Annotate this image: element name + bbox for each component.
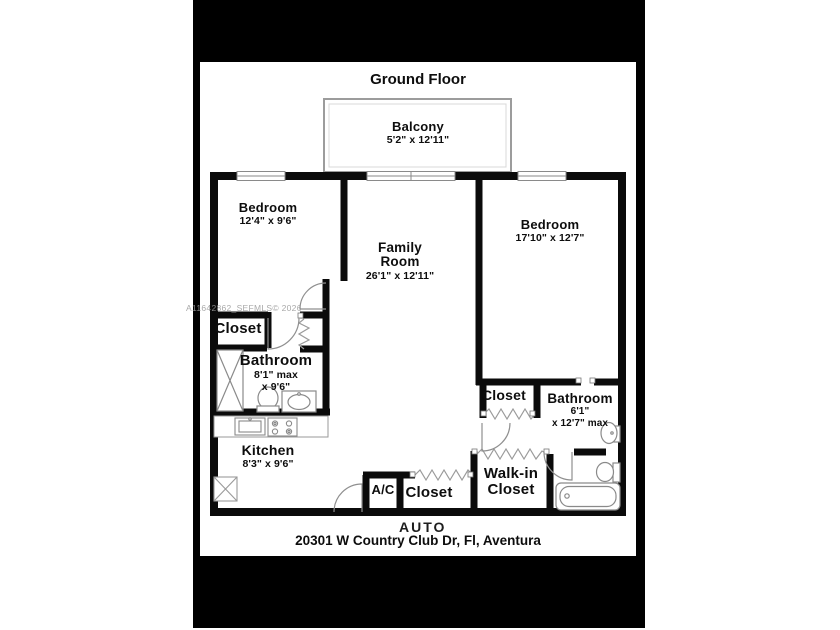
- room-label-ac: A/C: [372, 483, 395, 497]
- floor-title: Ground Floor: [370, 71, 466, 88]
- listing-photo: Ground Floor: [0, 0, 840, 630]
- room-label-bedroom-right: Bedroom 17'10" x 12'7": [516, 218, 585, 244]
- room-label-closet-hall: Closet: [405, 485, 452, 501]
- sink-left: [282, 391, 316, 412]
- room-label-family-room: Family Room 26'1" x 12'11": [366, 241, 434, 282]
- room-label-bathroom-left: Bathroom 8'1" max x 9'6": [240, 353, 312, 394]
- toilet-right: [597, 463, 621, 483]
- room-label-walkin-closet: Walk-in Closet: [484, 466, 538, 498]
- room-label-closet-left: Closet: [214, 321, 261, 337]
- room-label-closet-right: Closet: [482, 388, 526, 403]
- address-caption: 20301 W Country Club Dr, Fl, Aventura: [295, 533, 541, 548]
- room-label-kitchen: Kitchen 8'3" x 9'6": [242, 443, 295, 470]
- photo-background: Ground Floor: [193, 0, 645, 628]
- stove: [268, 418, 297, 436]
- room-label-bathroom-right: Bathroom 6'1" x 12'7" max: [547, 392, 612, 430]
- kitchen-sink: [235, 418, 265, 435]
- room-label-bedroom-left: Bedroom 12'4" x 9'6": [239, 201, 297, 227]
- room-label-balcony: Balcony 5'2" x 12'11": [387, 120, 449, 146]
- utility-box: [214, 477, 237, 501]
- bathtub: [556, 483, 620, 510]
- mls-watermark: A11642862_SEFMLS© 2026: [186, 303, 302, 313]
